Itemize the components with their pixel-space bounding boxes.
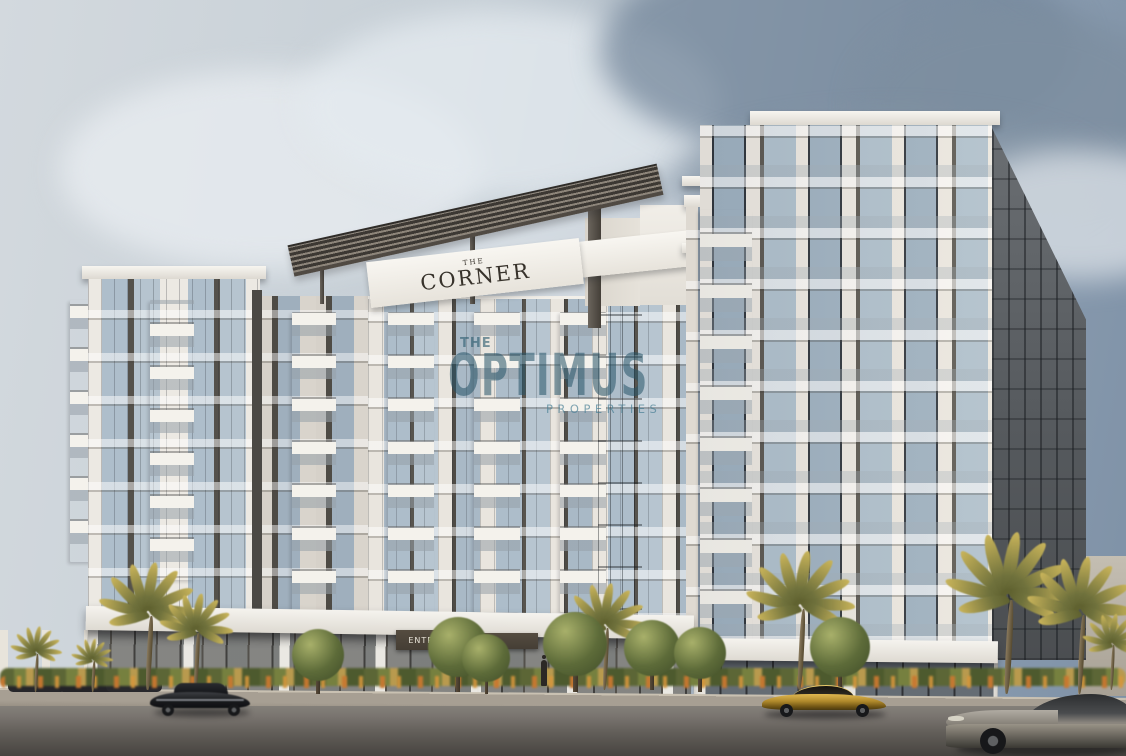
facade-recess	[252, 290, 262, 621]
canopy-fascia	[692, 638, 998, 663]
car-highlight	[156, 699, 244, 701]
entrance-canopy: ENTRANCE	[396, 630, 472, 650]
balcony-column	[388, 312, 434, 612]
car-body	[946, 724, 1126, 748]
sunlight-overlay	[700, 125, 992, 648]
black-sedan	[150, 680, 252, 718]
balcony-column	[150, 300, 194, 580]
balcony-column	[292, 312, 336, 612]
architectural-rendering: THE CORNER ENTRANCE	[0, 0, 1126, 756]
pedestrian	[541, 660, 547, 686]
parapet-slab	[750, 111, 1000, 125]
watermark-tagline: PROPERTIES	[546, 402, 661, 416]
sign-name: CORNER	[419, 259, 531, 293]
entrance-canopy	[482, 633, 538, 649]
gold-sedan	[762, 684, 888, 720]
optimus-properties-watermark: THE OPTIMUS PROPERTIES	[446, 334, 686, 424]
headlight	[948, 716, 964, 721]
entrance-sign: ENTRANCE	[408, 636, 459, 645]
parapet-slab	[82, 266, 266, 279]
watermark-brand: OPTIMUS	[448, 346, 649, 404]
sports-car	[946, 694, 1126, 756]
